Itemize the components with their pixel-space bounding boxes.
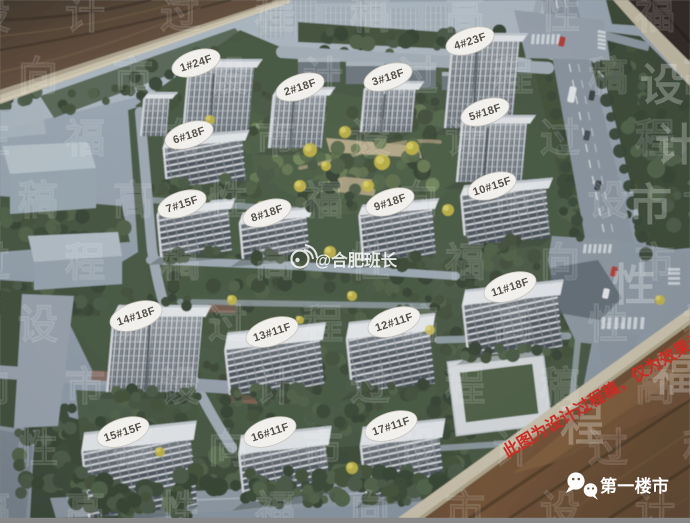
svg-text:高: 高 — [65, 489, 105, 518]
svg-text:程: 程 — [65, 241, 105, 285]
svg-text:计: 计 — [255, 365, 295, 409]
svg-text:稿: 稿 — [588, 55, 628, 99]
svg-text:稿: 稿 — [18, 179, 58, 223]
svg-text:福: 福 — [64, 117, 105, 161]
svg-text:稿: 稿 — [0, 489, 10, 518]
svg-text:向: 向 — [540, 241, 580, 285]
svg-text:设: 设 — [588, 179, 628, 223]
svg-text:设: 设 — [18, 303, 58, 347]
svg-text:计: 计 — [655, 121, 690, 170]
svg-text:设: 设 — [0, 0, 10, 37]
svg-text:程: 程 — [493, 55, 533, 99]
svg-text:过: 过 — [0, 241, 10, 285]
svg-text:市: 市 — [628, 181, 672, 230]
svg-text:市: 市 — [445, 489, 485, 518]
svg-text:高: 高 — [113, 179, 153, 223]
svg-text:福: 福 — [254, 489, 295, 518]
svg-text:@合肥班长: @合肥班长 — [315, 250, 398, 270]
svg-text:福: 福 — [634, 0, 675, 37]
svg-text:设: 设 — [350, 117, 390, 161]
svg-text:设: 设 — [160, 365, 200, 409]
svg-text:市: 市 — [65, 365, 105, 409]
svg-text:程: 程 — [303, 303, 343, 347]
svg-text:向: 向 — [0, 365, 10, 409]
svg-text:性: 性 — [160, 489, 200, 518]
svg-text:市: 市 — [303, 427, 343, 471]
svg-text:福: 福 — [444, 241, 485, 285]
svg-text:程: 程 — [683, 427, 690, 471]
svg-text:程: 程 — [445, 365, 485, 409]
svg-text:计: 计 — [683, 179, 690, 223]
svg-text:性: 性 — [18, 427, 58, 471]
svg-text:过: 过 — [540, 117, 580, 161]
svg-text:向: 向 — [18, 55, 58, 99]
svg-text:过: 过 — [160, 0, 200, 37]
svg-text:性: 性 — [540, 0, 580, 37]
svg-text:稿: 稿 — [350, 0, 390, 37]
svg-text:福: 福 — [302, 179, 343, 223]
svg-text:性: 性 — [208, 179, 248, 223]
svg-text:性: 性 — [612, 261, 656, 310]
svg-text:高: 高 — [255, 241, 295, 285]
svg-text:设: 设 — [640, 61, 684, 110]
svg-text:向: 向 — [208, 427, 248, 471]
svg-text:稿: 稿 — [160, 241, 200, 285]
svg-text:市: 市 — [113, 55, 153, 99]
svg-text:市: 市 — [255, 117, 295, 161]
svg-text:计: 计 — [65, 0, 105, 37]
svg-text:第一楼市: 第一楼市 — [600, 476, 669, 496]
svg-text:程: 程 — [255, 0, 295, 37]
svg-text:过: 过 — [350, 365, 390, 409]
svg-text:向: 向 — [350, 489, 390, 518]
svg-text:高: 高 — [683, 55, 690, 99]
svg-text:性: 性 — [0, 117, 10, 161]
svg-text:高: 高 — [493, 303, 533, 347]
svg-text:设: 设 — [540, 489, 580, 518]
svg-text:过: 过 — [208, 303, 248, 347]
